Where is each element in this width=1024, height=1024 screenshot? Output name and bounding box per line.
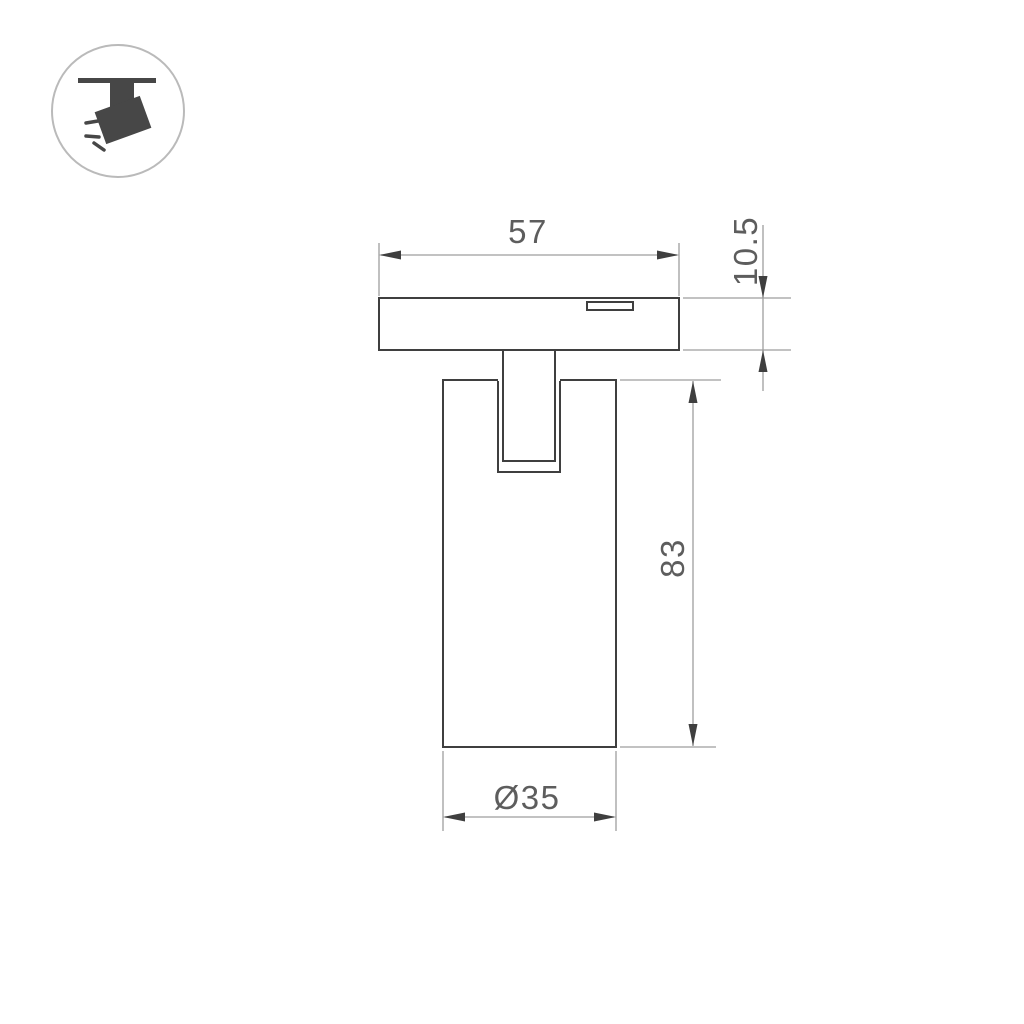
arrowhead-up-icon xyxy=(689,381,698,403)
technical-drawing-svg: 57 10.5 83 Ø35 xyxy=(0,0,1024,1024)
arrowhead-up-icon xyxy=(759,350,768,372)
light-ray-icon xyxy=(86,136,99,137)
product-dimension-diagram: 57 10.5 83 Ø35 xyxy=(0,0,1024,1024)
arrowhead-left-icon xyxy=(443,813,465,822)
dim-label-plate-width: 57 xyxy=(508,213,548,250)
dim-label-body-height: 83 xyxy=(654,538,691,578)
fixture-outline xyxy=(379,298,679,747)
pivot-collar-outline xyxy=(498,381,560,472)
arrowhead-left-icon xyxy=(379,251,401,260)
track-spotlight-icon xyxy=(52,45,184,177)
dimension-plate-height: 10.5 xyxy=(683,216,791,391)
lamp-body-outline xyxy=(443,380,616,747)
dimension-plate-width: 57 xyxy=(379,213,679,296)
light-ray-icon xyxy=(86,121,98,123)
pivot-stem-outline xyxy=(503,351,555,461)
dim-label-plate-height: 10.5 xyxy=(727,216,764,286)
arrowhead-right-icon xyxy=(657,251,679,260)
arrowhead-right-icon xyxy=(594,813,616,822)
arrowhead-down-icon xyxy=(689,724,698,746)
dim-label-body-diameter: Ø35 xyxy=(494,779,561,816)
dimension-body-height: 83 xyxy=(620,380,721,747)
dimension-body-diameter: Ø35 xyxy=(443,751,616,831)
